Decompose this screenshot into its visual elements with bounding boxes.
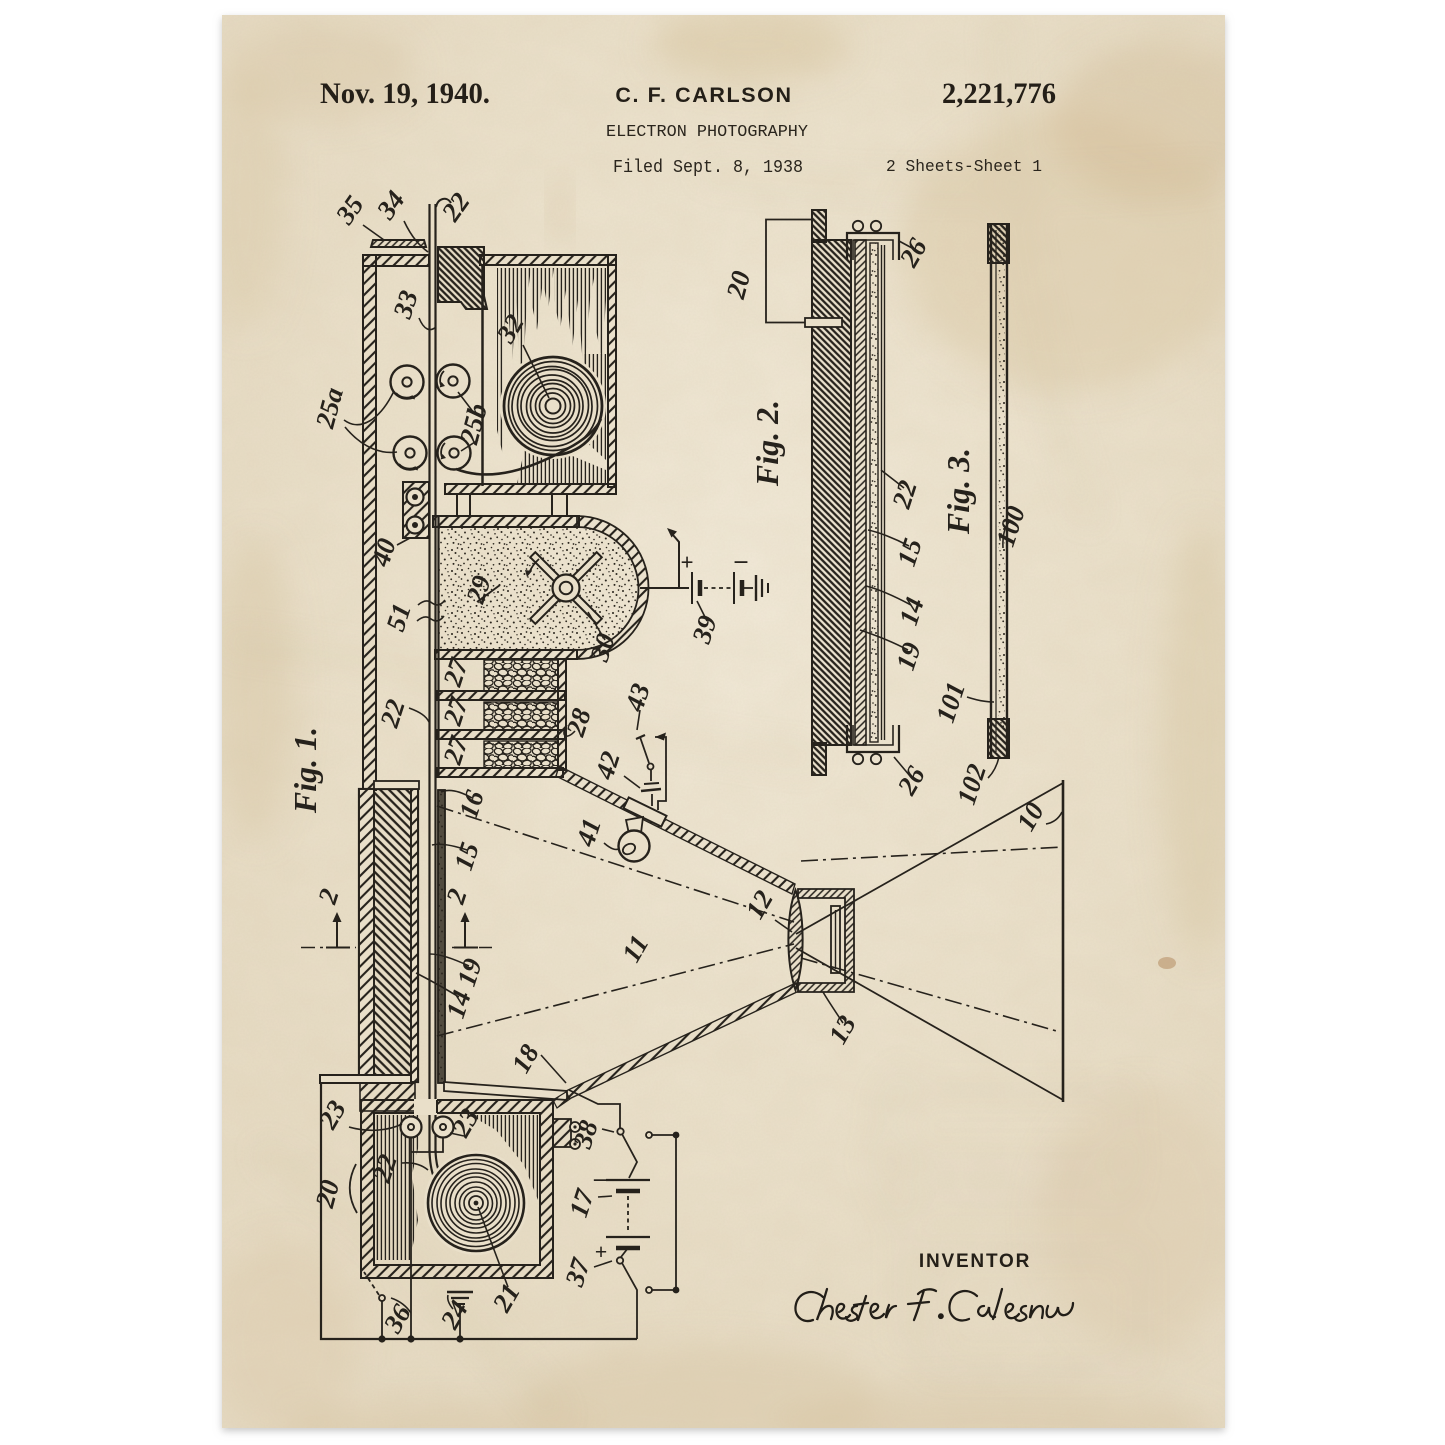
svg-text:Fig. 3.: Fig. 3.: [940, 448, 976, 535]
svg-text:Fig. 2.: Fig. 2.: [749, 400, 785, 487]
svg-text:Fig. 1.: Fig. 1.: [287, 727, 323, 814]
svg-text:+: +: [680, 550, 693, 575]
svg-text:–: –: [734, 547, 748, 574]
svg-text:2 Sheets-Sheet 1: 2 Sheets-Sheet 1: [886, 158, 1042, 177]
svg-text:INVENTOR: INVENTOR: [919, 1251, 1031, 1272]
svg-text:C. F. CARLSON: C. F. CARLSON: [615, 83, 792, 107]
svg-text:ELECTRON PHOTOGRAPHY: ELECTRON PHOTOGRAPHY: [606, 123, 808, 142]
svg-text:2,221,776: 2,221,776: [942, 77, 1056, 110]
svg-text:Filed Sept. 8, 1938: Filed Sept. 8, 1938: [613, 158, 803, 178]
svg-text:–: –: [593, 1166, 607, 1192]
svg-text:Nov. 19, 1940.: Nov. 19, 1940.: [320, 77, 490, 110]
svg-text:+: +: [595, 1239, 608, 1264]
